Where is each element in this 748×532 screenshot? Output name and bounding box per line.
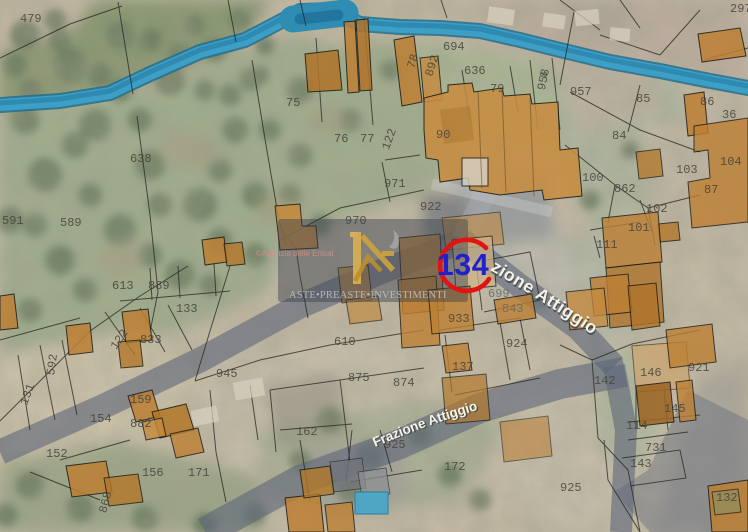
svg-text:922: 922 [420, 200, 442, 214]
svg-text:925: 925 [560, 481, 582, 495]
svg-text:971: 971 [384, 177, 406, 191]
svg-text:610: 610 [334, 335, 356, 349]
svg-text:85: 85 [636, 92, 650, 106]
svg-text:137: 137 [452, 360, 474, 374]
svg-text:100: 100 [582, 171, 604, 185]
svg-text:613: 613 [112, 279, 134, 293]
svg-text:77: 77 [360, 132, 374, 146]
svg-text:479: 479 [20, 12, 42, 26]
svg-text:592: 592 [44, 353, 61, 376]
svg-text:79: 79 [490, 82, 504, 96]
svg-text:143: 143 [630, 457, 652, 471]
svg-text:87: 87 [704, 183, 718, 197]
svg-text:171: 171 [188, 466, 210, 480]
svg-text:154: 154 [90, 412, 112, 426]
svg-text:694: 694 [443, 40, 465, 54]
svg-text:874: 874 [393, 376, 415, 390]
svg-text:142: 142 [594, 374, 616, 388]
svg-text:636: 636 [464, 64, 486, 78]
svg-text:172: 172 [444, 460, 466, 474]
svg-text:ASTE•PREASTE•INVESTIMENTI: ASTE•PREASTE•INVESTIMENTI [289, 290, 447, 301]
svg-text:945: 945 [216, 367, 238, 381]
svg-text:924: 924 [506, 337, 528, 351]
svg-text:©Agenzia delle Entrat: ©Agenzia delle Entrat [256, 249, 334, 258]
svg-text:146: 146 [640, 366, 662, 380]
svg-text:101: 101 [628, 221, 650, 235]
svg-text:156: 156 [142, 466, 164, 480]
svg-text:152: 152 [46, 447, 68, 461]
svg-text:84: 84 [612, 129, 626, 143]
svg-text:114: 114 [626, 419, 648, 433]
svg-text:699: 699 [488, 287, 510, 301]
svg-text:162: 162 [296, 425, 318, 439]
svg-text:76: 76 [334, 132, 348, 146]
svg-text:104: 104 [720, 155, 742, 169]
svg-text:111: 111 [596, 238, 618, 252]
svg-text:90: 90 [436, 128, 450, 142]
svg-text:102: 102 [646, 202, 668, 216]
svg-text:145: 145 [664, 402, 686, 416]
svg-text:638: 638 [130, 152, 152, 166]
svg-text:∞: ∞ [540, 68, 547, 82]
svg-text:843: 843 [502, 302, 524, 316]
svg-text:957: 957 [570, 85, 592, 99]
svg-text:921: 921 [688, 361, 710, 375]
svg-text:889: 889 [148, 279, 170, 293]
svg-text:933: 933 [448, 312, 470, 326]
svg-text:882: 882 [130, 417, 152, 431]
svg-text:134: 134 [437, 248, 489, 282]
svg-text:297: 297 [730, 2, 748, 16]
svg-text:731: 731 [645, 441, 667, 455]
svg-text:591: 591 [2, 214, 24, 228]
svg-text:103: 103 [676, 163, 698, 177]
svg-text:133: 133 [176, 302, 198, 316]
svg-text:875: 875 [348, 371, 370, 385]
svg-text:132: 132 [716, 491, 738, 505]
svg-text:862: 862 [614, 182, 636, 196]
svg-text:75: 75 [286, 96, 300, 110]
svg-text:36: 36 [722, 108, 736, 122]
svg-text:159: 159 [130, 393, 152, 407]
svg-text:589: 589 [60, 216, 82, 230]
svg-text:86: 86 [700, 95, 714, 109]
svg-text:833: 833 [140, 333, 162, 347]
